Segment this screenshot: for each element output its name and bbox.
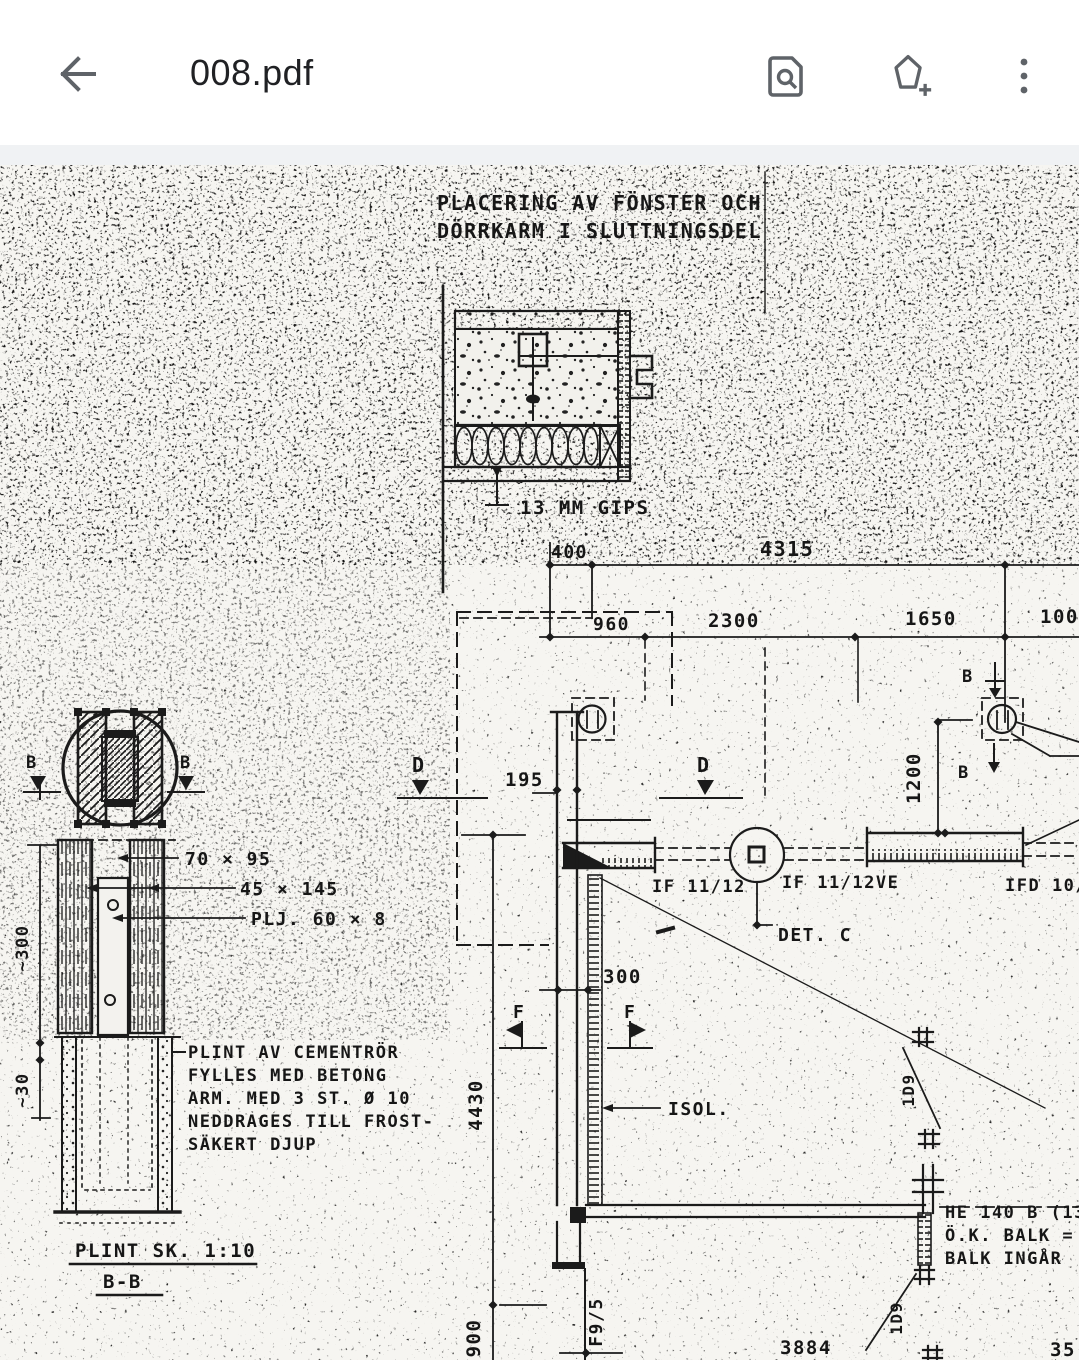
id9-label-1: 1D9 xyxy=(899,1073,918,1106)
back-arrow-icon[interactable] xyxy=(52,50,100,98)
dim-partial: 35 xyxy=(1050,1339,1076,1360)
blueprint-drawing: PLACERING AV FÖNSTER OCH DÖRRKARM I SLUT… xyxy=(0,165,1079,1360)
dim-3884: 3884 xyxy=(780,1337,832,1359)
he-note-line-3: BALK INGÅR xyxy=(945,1246,1062,1269)
dim-approx-30: ~30 xyxy=(13,1072,33,1107)
dim-4430: 4430 xyxy=(465,1079,487,1131)
document-title: 008.pdf xyxy=(190,52,314,94)
dim-4315: 4315 xyxy=(760,537,814,561)
more-options-icon[interactable] xyxy=(1000,52,1048,100)
dim-195: 195 xyxy=(505,769,544,791)
he-note-line-1: HE 140 B (13 xyxy=(945,1203,1079,1223)
app-bar: 008.pdf xyxy=(0,0,1079,145)
section-f-right: F xyxy=(624,1002,636,1023)
dim-2300: 2300 xyxy=(708,610,760,632)
heading-line-2: DÖRRKARM I SLUTTNINGSDEL xyxy=(437,219,762,243)
plint-section-bb: B-B xyxy=(103,1271,142,1293)
heading-line-1: PLACERING AV FÖNSTER OCH xyxy=(437,191,762,215)
gips-label: 13 MM GIPS xyxy=(520,497,649,519)
if-label-2: IF 11/12VE xyxy=(782,873,899,893)
plint-post-right xyxy=(130,840,164,1033)
dim-300: 300 xyxy=(603,966,642,988)
plj-label: PLJ. 60 × 8 xyxy=(251,909,387,930)
pdf-viewer-screen: 008.pdf xyxy=(0,0,1079,1360)
f95-label: F9/5 xyxy=(586,1297,607,1346)
isolation-strip xyxy=(588,875,602,1205)
find-in-page-icon[interactable] xyxy=(762,52,810,100)
detail-c-label: DET. C xyxy=(778,925,852,946)
plint-note-line-4: NEDDRAGES TILL FROST- xyxy=(188,1112,434,1132)
viewer-background-band xyxy=(0,145,1079,165)
dim-70x95: 70 × 95 xyxy=(185,849,271,870)
section-b-bottom: B xyxy=(958,763,970,783)
if-label-3: IFD 10/2 xyxy=(1005,876,1079,896)
dim-900: 900 xyxy=(463,1319,485,1358)
concrete-block xyxy=(455,329,618,426)
id9-label-2: 1D9 xyxy=(887,1301,906,1334)
plint-note-line-3: ARM. MED 3 ST. Ø 10 xyxy=(188,1089,411,1109)
add-annotation-icon[interactable] xyxy=(885,52,933,100)
section-d-right: D xyxy=(697,753,711,777)
plint-title: PLINT SK. 1:10 xyxy=(75,1240,256,1262)
section-f-left: F xyxy=(513,1002,525,1023)
dim-1650: 1650 xyxy=(905,608,957,630)
dim-960: 960 xyxy=(593,614,630,635)
if-label-1: IF 11/12 xyxy=(652,877,746,897)
plint-core xyxy=(98,878,128,1035)
dim-1200: 1200 xyxy=(903,752,925,804)
dim-45x145: 45 × 145 xyxy=(240,879,339,900)
he-note-line-2: Ö.K. BALK = Ö.V xyxy=(945,1224,1079,1246)
plint-note-line-5: SÄKERT DJUP xyxy=(188,1133,317,1155)
plint-note-line-1: PLINT AV CEMENTRÖR xyxy=(188,1041,399,1063)
plint-post-left xyxy=(58,840,92,1033)
dim-approx-300: ~300 xyxy=(13,925,33,972)
dim-400: 400 xyxy=(551,542,588,563)
isol-label: ISOL. xyxy=(668,1099,730,1120)
section-b-plan-left: B xyxy=(26,753,38,773)
dim-1000: 1000 xyxy=(1040,606,1079,628)
pdf-page-canvas[interactable]: PLACERING AV FÖNSTER OCH DÖRRKARM I SLUT… xyxy=(0,165,1079,1360)
section-d-left: D xyxy=(412,753,426,777)
plint-note-line-2: FYLLES MED BETONG xyxy=(188,1066,388,1086)
section-b-top: B xyxy=(962,667,974,687)
section-b-plan-right: B xyxy=(180,753,192,773)
